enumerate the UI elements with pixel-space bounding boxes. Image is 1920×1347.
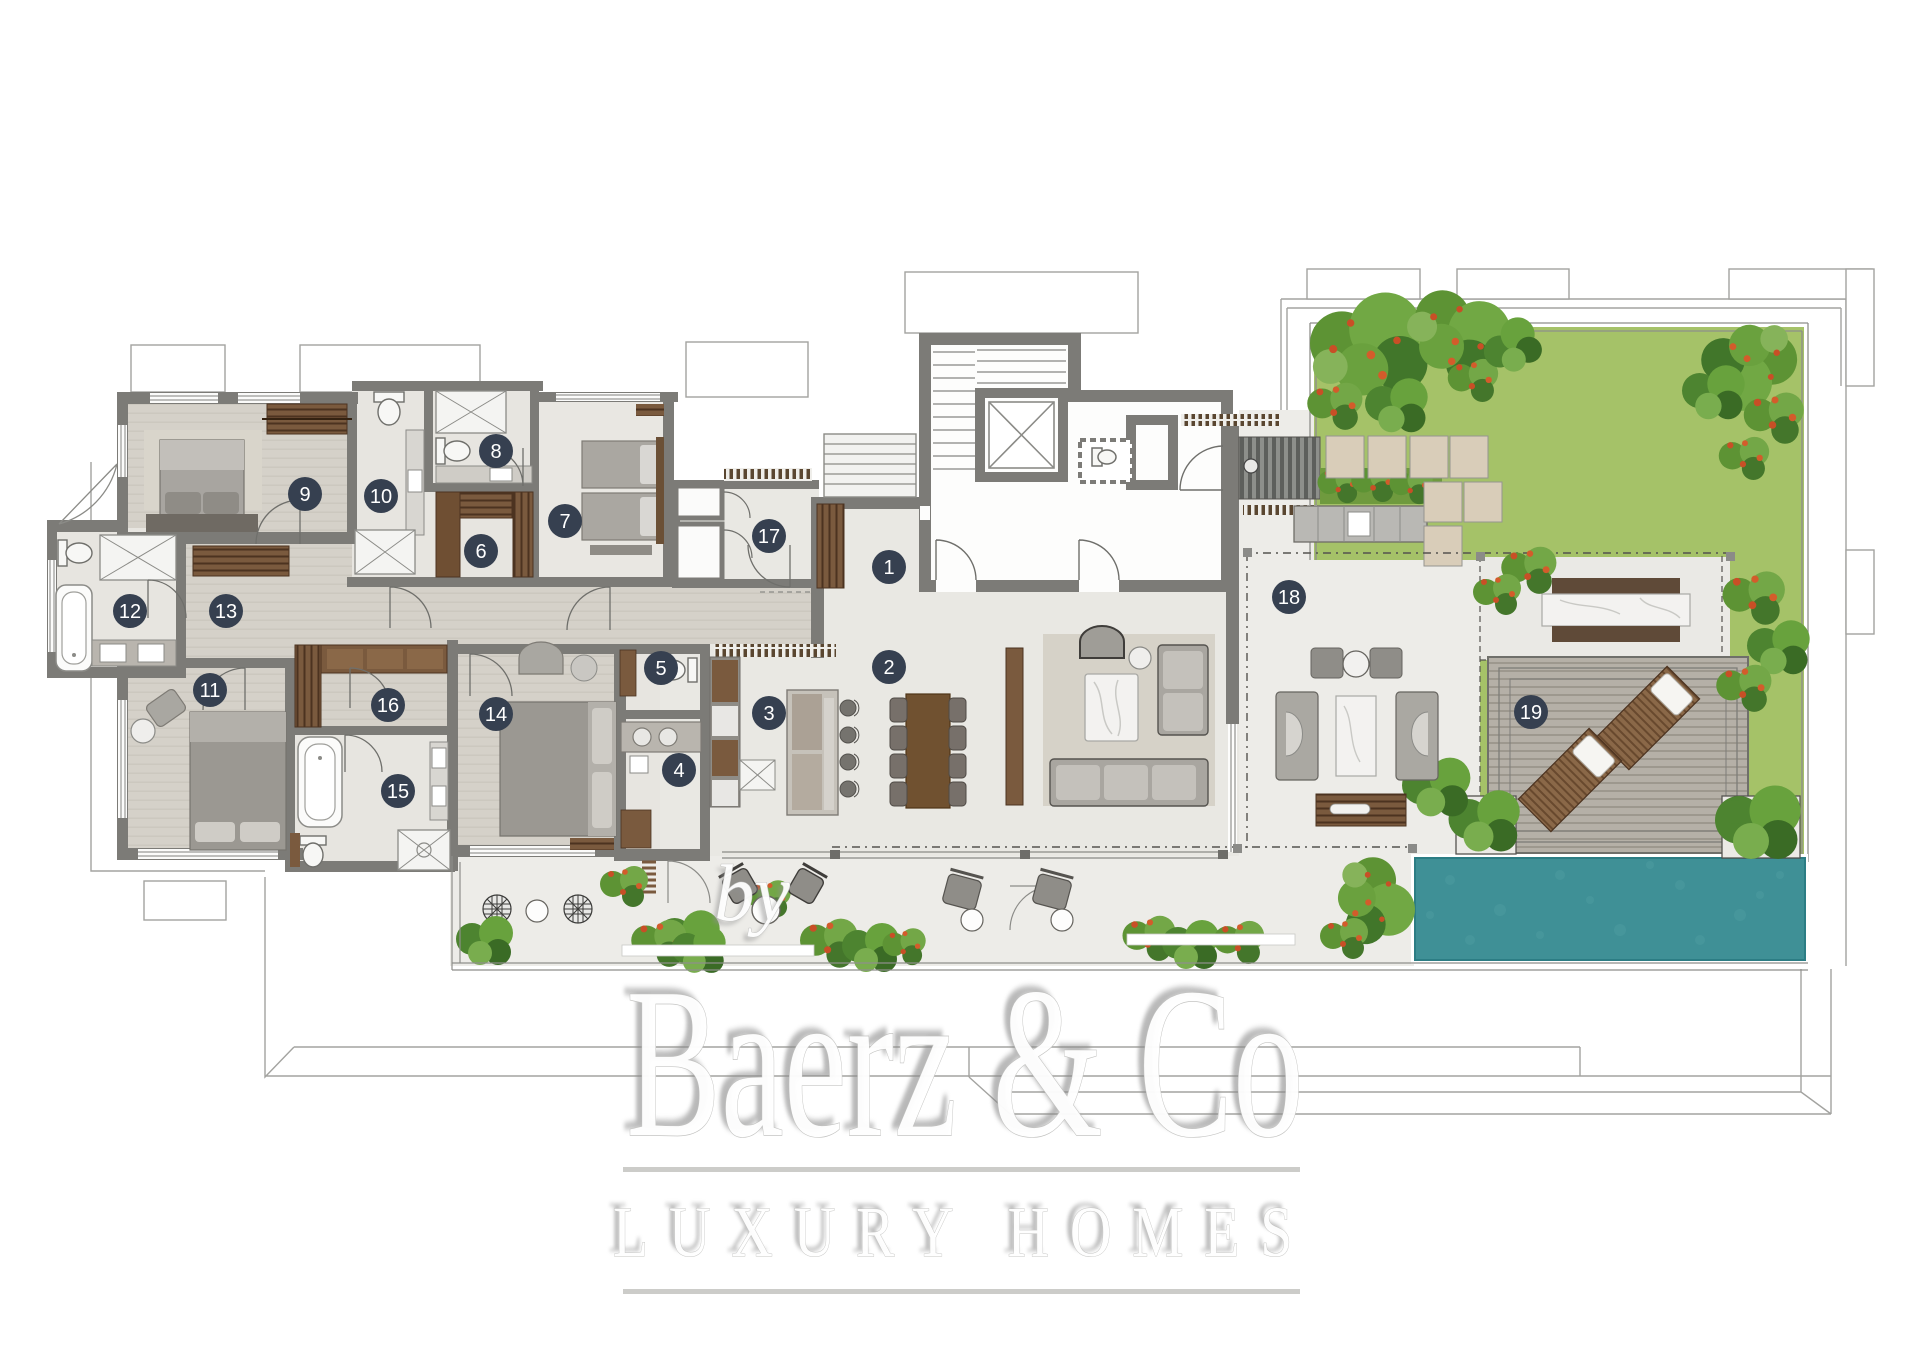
svg-text:19: 19 (1520, 702, 1542, 724)
svg-text:18: 18 (1278, 587, 1300, 609)
svg-text:7: 7 (559, 511, 570, 533)
svg-text:12: 12 (119, 601, 141, 623)
svg-text:6: 6 (475, 541, 486, 563)
svg-text:15: 15 (387, 781, 409, 803)
svg-text:4: 4 (673, 760, 684, 782)
svg-text:13: 13 (215, 601, 237, 623)
svg-text:by: by (714, 850, 790, 938)
svg-text:10: 10 (370, 486, 392, 508)
svg-text:17: 17 (758, 526, 780, 548)
svg-text:LUXURY HOMES: LUXURY HOMES (613, 1193, 1313, 1273)
svg-text:9: 9 (299, 484, 310, 506)
svg-text:2: 2 (883, 657, 894, 679)
svg-text:16: 16 (377, 695, 399, 717)
svg-text:8: 8 (490, 441, 501, 463)
svg-text:Baerz & Co: Baerz & Co (626, 945, 1304, 1182)
svg-text:11: 11 (200, 680, 221, 702)
svg-text:14: 14 (485, 704, 507, 726)
svg-text:1: 1 (883, 557, 894, 579)
svg-text:5: 5 (655, 658, 666, 680)
svg-text:3: 3 (763, 703, 774, 725)
